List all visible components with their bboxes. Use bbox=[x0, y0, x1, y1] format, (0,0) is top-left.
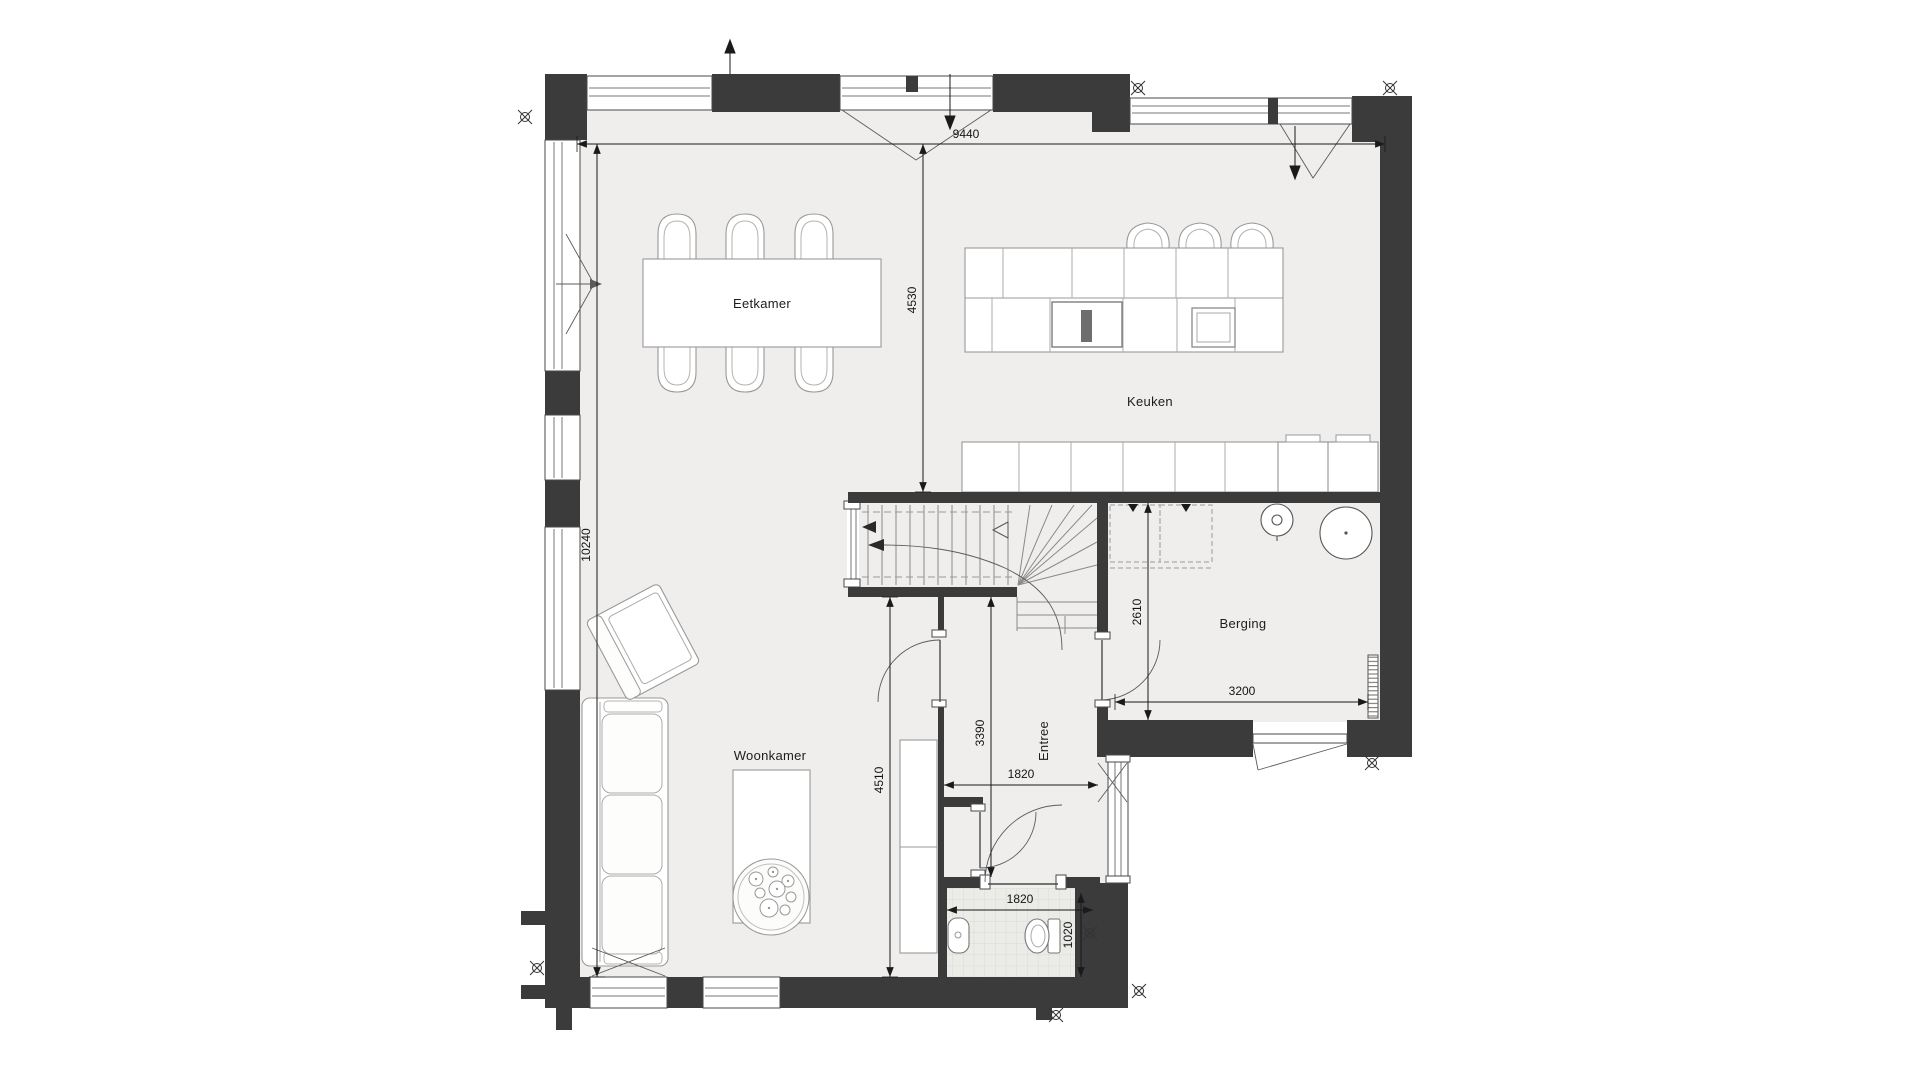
room-label-keuken: Keuken bbox=[1127, 394, 1173, 409]
boiler-icon bbox=[1320, 507, 1372, 559]
survey-marker-icon bbox=[1083, 926, 1097, 940]
survey-marker-icon bbox=[1049, 1008, 1063, 1022]
coffee-table bbox=[733, 770, 810, 935]
dim-hall-length: 3390 bbox=[973, 719, 987, 746]
counter-appliance bbox=[1278, 442, 1328, 492]
room-label-eetkamer: Eetkamer bbox=[733, 296, 791, 311]
window bbox=[545, 415, 580, 480]
washbasin bbox=[948, 918, 969, 953]
dim-wc-width: 1820 bbox=[1007, 892, 1034, 906]
survey-marker-icon bbox=[530, 961, 544, 975]
dim-overall-depth: 10240 bbox=[579, 528, 593, 562]
dim-overall-width: 9440 bbox=[953, 127, 980, 141]
survey-marker-icon bbox=[518, 110, 532, 124]
survey-marker-icon bbox=[1132, 984, 1146, 998]
sofa bbox=[582, 698, 668, 966]
door-swing-icon bbox=[1258, 744, 1347, 770]
window bbox=[587, 76, 712, 110]
dim-living-depth: 4510 bbox=[872, 766, 886, 793]
counter-appliance bbox=[1328, 442, 1378, 492]
dim-storage-width: 3200 bbox=[1229, 684, 1256, 698]
window bbox=[703, 977, 780, 1008]
survey-marker-icon bbox=[1131, 81, 1145, 95]
floor-plan: 9440 10240 4530 4510 3390 2610 3200 1820… bbox=[0, 0, 1920, 1080]
wc bbox=[1025, 919, 1060, 953]
room-label-woonkamer: Woonkamer bbox=[734, 748, 807, 763]
dim-hall-width: 1820 bbox=[1008, 767, 1035, 781]
window bbox=[545, 527, 580, 690]
survey-marker-icon bbox=[1383, 81, 1397, 95]
room-label-berging: Berging bbox=[1220, 616, 1267, 631]
room-label-entree: Entree bbox=[1036, 721, 1051, 761]
dim-wc-depth: 1020 bbox=[1061, 921, 1075, 948]
island-sink bbox=[1192, 308, 1235, 347]
survey-marker-icon bbox=[1365, 756, 1379, 770]
exterior-door bbox=[1253, 734, 1347, 770]
radiator bbox=[1368, 655, 1378, 718]
dim-storage-depth: 2610 bbox=[1130, 598, 1144, 625]
dim-dining-depth: 4530 bbox=[905, 286, 919, 313]
kitchen-counter bbox=[962, 435, 1378, 492]
tv-cabinet bbox=[900, 740, 937, 953]
